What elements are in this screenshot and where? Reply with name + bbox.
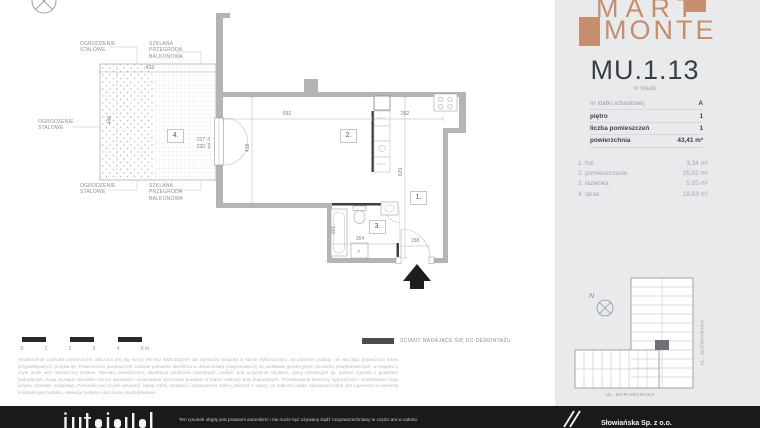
floorplan-sheet: OGRODZENIE STALOWE SZKLANA PRZEGRODA BAL… xyxy=(0,0,760,428)
scale-tick: 3 xyxy=(88,346,100,352)
unit-id-caption: nr lokalu xyxy=(580,86,710,92)
room-area-row: 4. taras 18,93 m² xyxy=(578,191,708,201)
detail-label: piętro xyxy=(590,113,608,120)
footer-bar: Ten rysunek objęty jest prawami autorski… xyxy=(0,406,760,428)
scale-segment xyxy=(118,337,142,342)
dim-balcony-sill: hpd. 20 xyxy=(207,134,211,152)
brand-logo-block-icon xyxy=(686,0,706,12)
unit-info-sidebar: MART MONTE MU.1.13 nr lokalu nr klatki s… xyxy=(555,0,760,407)
room-area: 18,93 m² xyxy=(683,191,708,201)
scale-tick: 5 m xyxy=(136,346,154,352)
detail-value: A xyxy=(698,100,703,107)
dim-bath-height: 201 xyxy=(331,220,337,240)
terrace-area xyxy=(100,64,216,180)
detail-label: powierzchnia xyxy=(590,137,630,144)
dim-living-height: 418 xyxy=(245,136,251,160)
legend-label: ŚCIANY NADAJĄCE SIĘ DO DEMONTAŻU xyxy=(400,338,511,344)
scale-segment xyxy=(22,337,46,342)
detail-value: 1 xyxy=(699,113,703,120)
room-label-hol: 1. xyxy=(410,191,427,205)
room-area-row: 3. łazienka 5,05 m² xyxy=(578,180,708,190)
street-label-bottom: UL. MARYMONCKA xyxy=(600,393,660,398)
brand-logo-line2: MONTE xyxy=(604,15,717,46)
legend-swatch-demountable xyxy=(362,338,394,344)
stove-icon xyxy=(434,94,457,111)
annotation-fence-left: OGRODZENIE STALOWE xyxy=(38,119,72,132)
scale-segment xyxy=(70,337,94,342)
room-area-row: 1. hol 3,34 m² xyxy=(578,160,708,170)
detail-value: 43,41 m² xyxy=(677,137,703,144)
room-name: 2. pomieszczenie xyxy=(578,170,627,180)
room-label-taras: 4. xyxy=(167,129,184,143)
scale-tick: 0 xyxy=(16,346,28,352)
detail-row: piętro 1 xyxy=(590,110,703,122)
kitchen-units xyxy=(374,96,390,172)
room-areas-list: 1. hol 3,34 m² 2. pomieszczenie 35,02 m²… xyxy=(578,160,708,201)
disclaimer-text: Powierzchnia użytkowa pomieszczeń oblicz… xyxy=(18,357,398,396)
room-label-pomieszczenie: 2. xyxy=(340,129,357,143)
compass-cut-icon xyxy=(32,0,56,13)
washer-label: p xyxy=(354,248,364,253)
dim-bath-width: 264 xyxy=(350,236,370,242)
scale-tick: 4 xyxy=(112,346,124,352)
unit-id: MU.1.13 xyxy=(580,55,710,86)
room-name: 1. hol xyxy=(578,160,594,170)
scale-tick: 1 xyxy=(40,346,52,352)
annotation-fence-bottom: OGRODZENIE STALOWE xyxy=(80,183,114,196)
annotation-glass-top: SZKLANA PRZEGRODA BALKONOWA xyxy=(149,41,183,60)
detail-row: nr klatki schodowej A xyxy=(590,98,703,110)
dim-right-height: 629 xyxy=(398,160,404,184)
detail-value: 1 xyxy=(699,125,703,132)
dim-terrace-width: 423 xyxy=(135,65,165,71)
developer-company-name: Słowiańska Sp. z o.o. xyxy=(601,420,672,427)
balcony-door xyxy=(215,118,248,165)
brand-logo-bar-icon xyxy=(579,17,600,46)
scale-tick: 2 xyxy=(64,346,76,352)
dim-terrace-height: 446 xyxy=(107,108,113,132)
entrance-door xyxy=(396,229,434,264)
dim-living-width: 592 xyxy=(272,111,302,117)
detail-row: liczba pomieszczeń 1 xyxy=(590,123,703,135)
footer-copyright-text: Ten rysunek objęty jest prawami autorski… xyxy=(179,417,417,422)
sink-icon xyxy=(381,202,398,215)
room-area-row: 2. pomieszczenie 35,02 m² xyxy=(578,170,708,180)
annotation-glass-bottom: SZKLANA PRZEGRODA BALKONOWA xyxy=(149,183,183,202)
street-label-right: AL. SŁOWIAŃSKA xyxy=(701,315,706,371)
developer-logo-icon xyxy=(561,409,585,428)
room-area: 35,02 m² xyxy=(683,170,708,180)
entrance-arrow-icon xyxy=(403,264,431,289)
room-name: 4. taras xyxy=(578,191,599,201)
detail-row: powierzchnia 43,41 m² xyxy=(590,135,703,147)
room-area: 3,34 m² xyxy=(686,160,708,170)
room-label-lazienka: 3. xyxy=(369,220,386,234)
annotation-fence-top: OGRODZENIE STALOWE xyxy=(80,41,114,54)
room-area: 5,05 m² xyxy=(686,180,708,190)
room-name: 3. łazienka xyxy=(578,180,609,190)
toilet-icon xyxy=(353,206,366,224)
detail-label: nr klatki schodowej xyxy=(590,100,644,107)
detail-label: liczba pomieszczeń xyxy=(590,125,649,132)
dim-entry-width: 158 xyxy=(405,238,425,244)
north-label: N xyxy=(589,293,594,300)
site-plan-unit-highlight xyxy=(655,340,669,350)
north-compass-icon xyxy=(597,300,613,316)
dim-kitchen-width: 252 xyxy=(393,111,417,117)
unit-details-table: nr klatki schodowej A piętro 1 liczba po… xyxy=(590,98,703,148)
footer-brand-wordmark-fragment xyxy=(64,411,156,428)
